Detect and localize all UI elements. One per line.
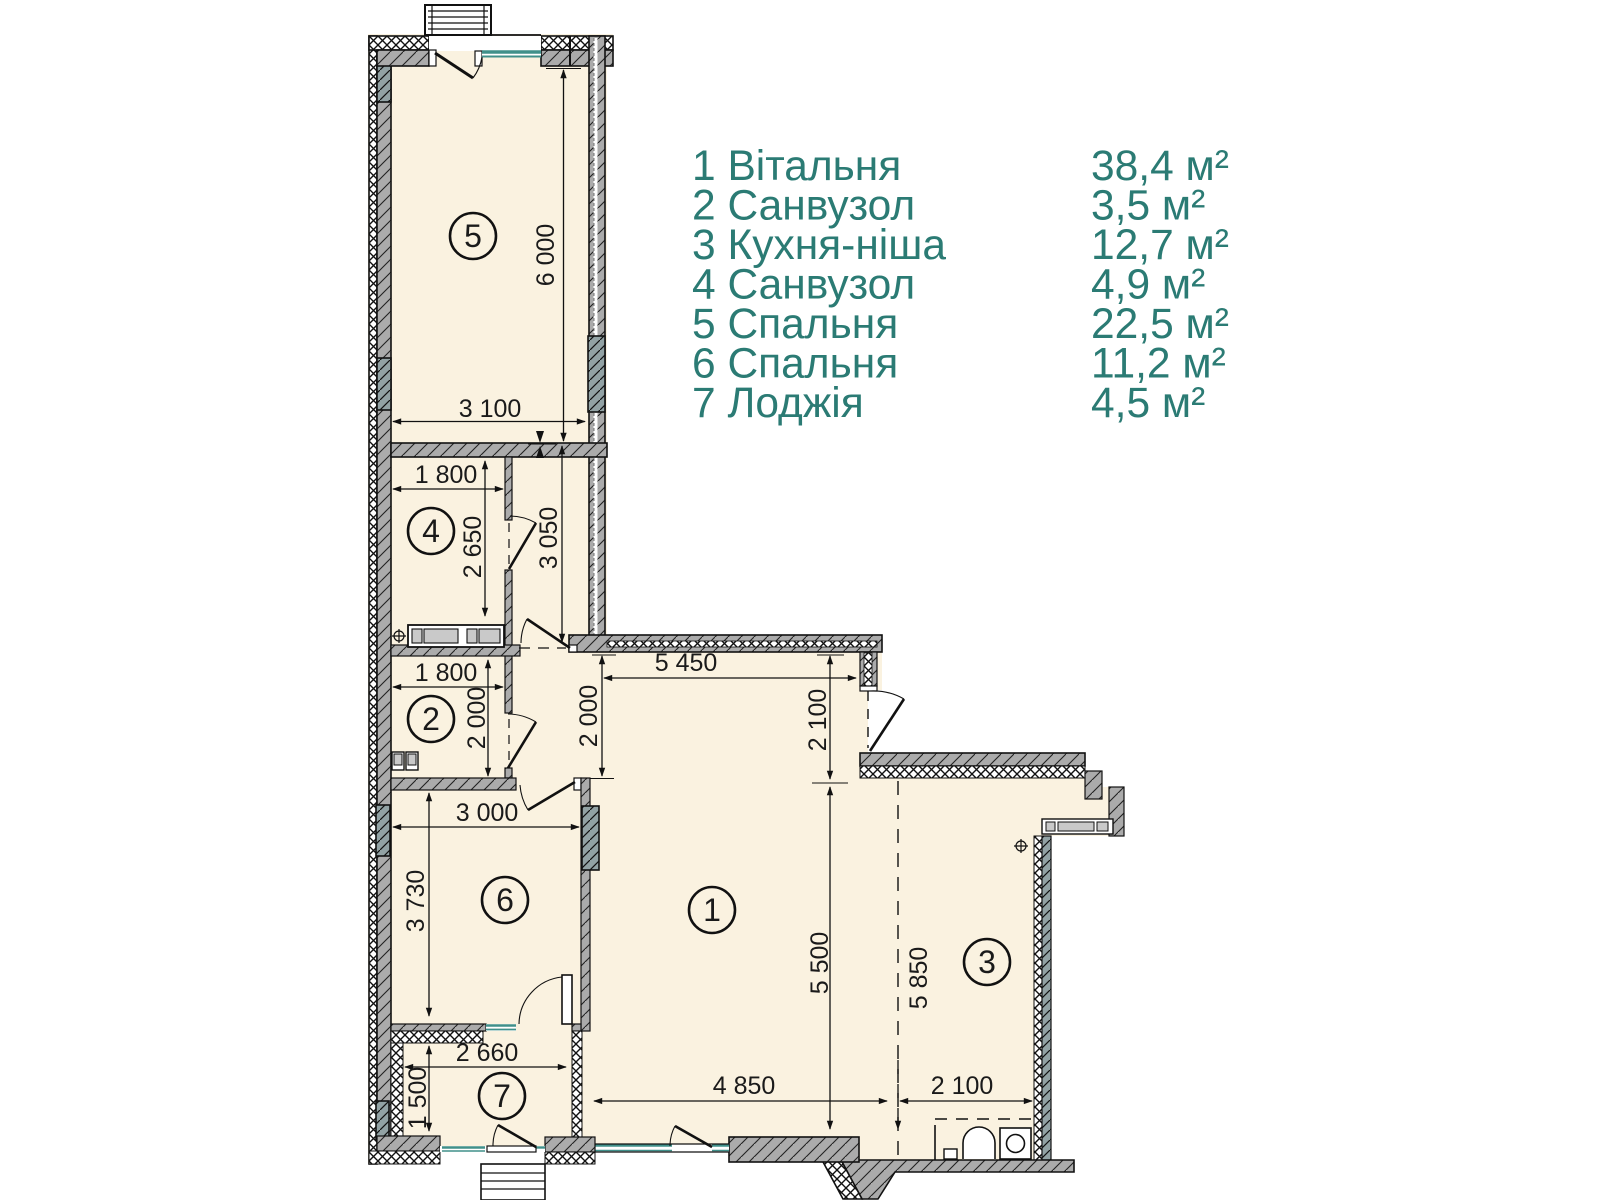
svg-text:4,5 м²: 4,5 м²	[1091, 380, 1205, 427]
svg-text:4: 4	[422, 513, 440, 549]
svg-text:5 500: 5 500	[806, 932, 834, 995]
svg-text:5 450: 5 450	[655, 649, 718, 677]
svg-text:4 850: 4 850	[713, 1072, 776, 1100]
svg-text:3: 3	[978, 944, 996, 980]
svg-text:2 000: 2 000	[575, 685, 603, 748]
svg-text:3 050: 3 050	[535, 507, 563, 570]
svg-text:7: 7	[493, 1078, 511, 1114]
svg-text:1 800: 1 800	[415, 461, 478, 489]
svg-text:1 500: 1 500	[404, 1067, 432, 1130]
svg-text:2 100: 2 100	[931, 1072, 994, 1100]
svg-text:1: 1	[703, 892, 721, 928]
svg-text:2 660: 2 660	[456, 1039, 519, 1067]
svg-text:3 100: 3 100	[459, 395, 522, 423]
svg-text:7 Лоджія: 7 Лоджія	[692, 380, 864, 427]
svg-text:6 000: 6 000	[532, 224, 560, 287]
svg-text:2 650: 2 650	[459, 516, 487, 579]
svg-text:1 800: 1 800	[415, 659, 478, 687]
svg-text:5: 5	[464, 218, 482, 254]
svg-text:2 000: 2 000	[463, 687, 491, 750]
svg-text:5 850: 5 850	[905, 947, 933, 1010]
svg-text:3 730: 3 730	[402, 870, 430, 933]
svg-text:2: 2	[422, 701, 440, 737]
svg-text:3 000: 3 000	[456, 799, 519, 827]
svg-text:2 100: 2 100	[804, 689, 832, 752]
svg-text:6: 6	[496, 882, 514, 918]
